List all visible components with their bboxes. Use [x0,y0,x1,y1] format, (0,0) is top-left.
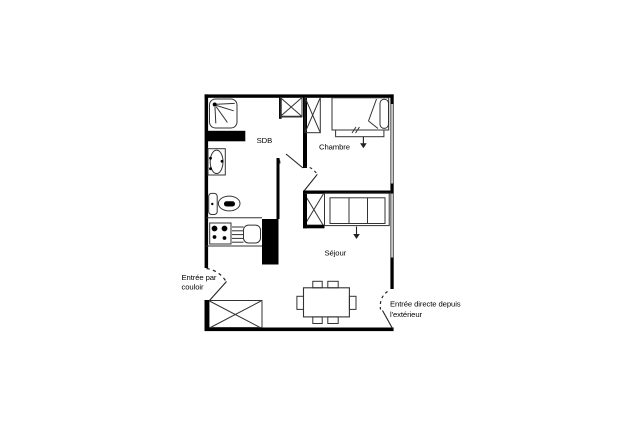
svg-text:l'extérieur: l'extérieur [390,310,423,319]
svg-text:couloir: couloir [182,282,204,291]
svg-text:Entrée directe depuis: Entrée directe depuis [390,300,461,309]
svg-text:Séjour: Séjour [325,248,347,257]
svg-text:SDB: SDB [257,136,273,145]
svg-text:Entrée par: Entrée par [182,273,217,282]
svg-text:Chambre: Chambre [319,142,350,151]
